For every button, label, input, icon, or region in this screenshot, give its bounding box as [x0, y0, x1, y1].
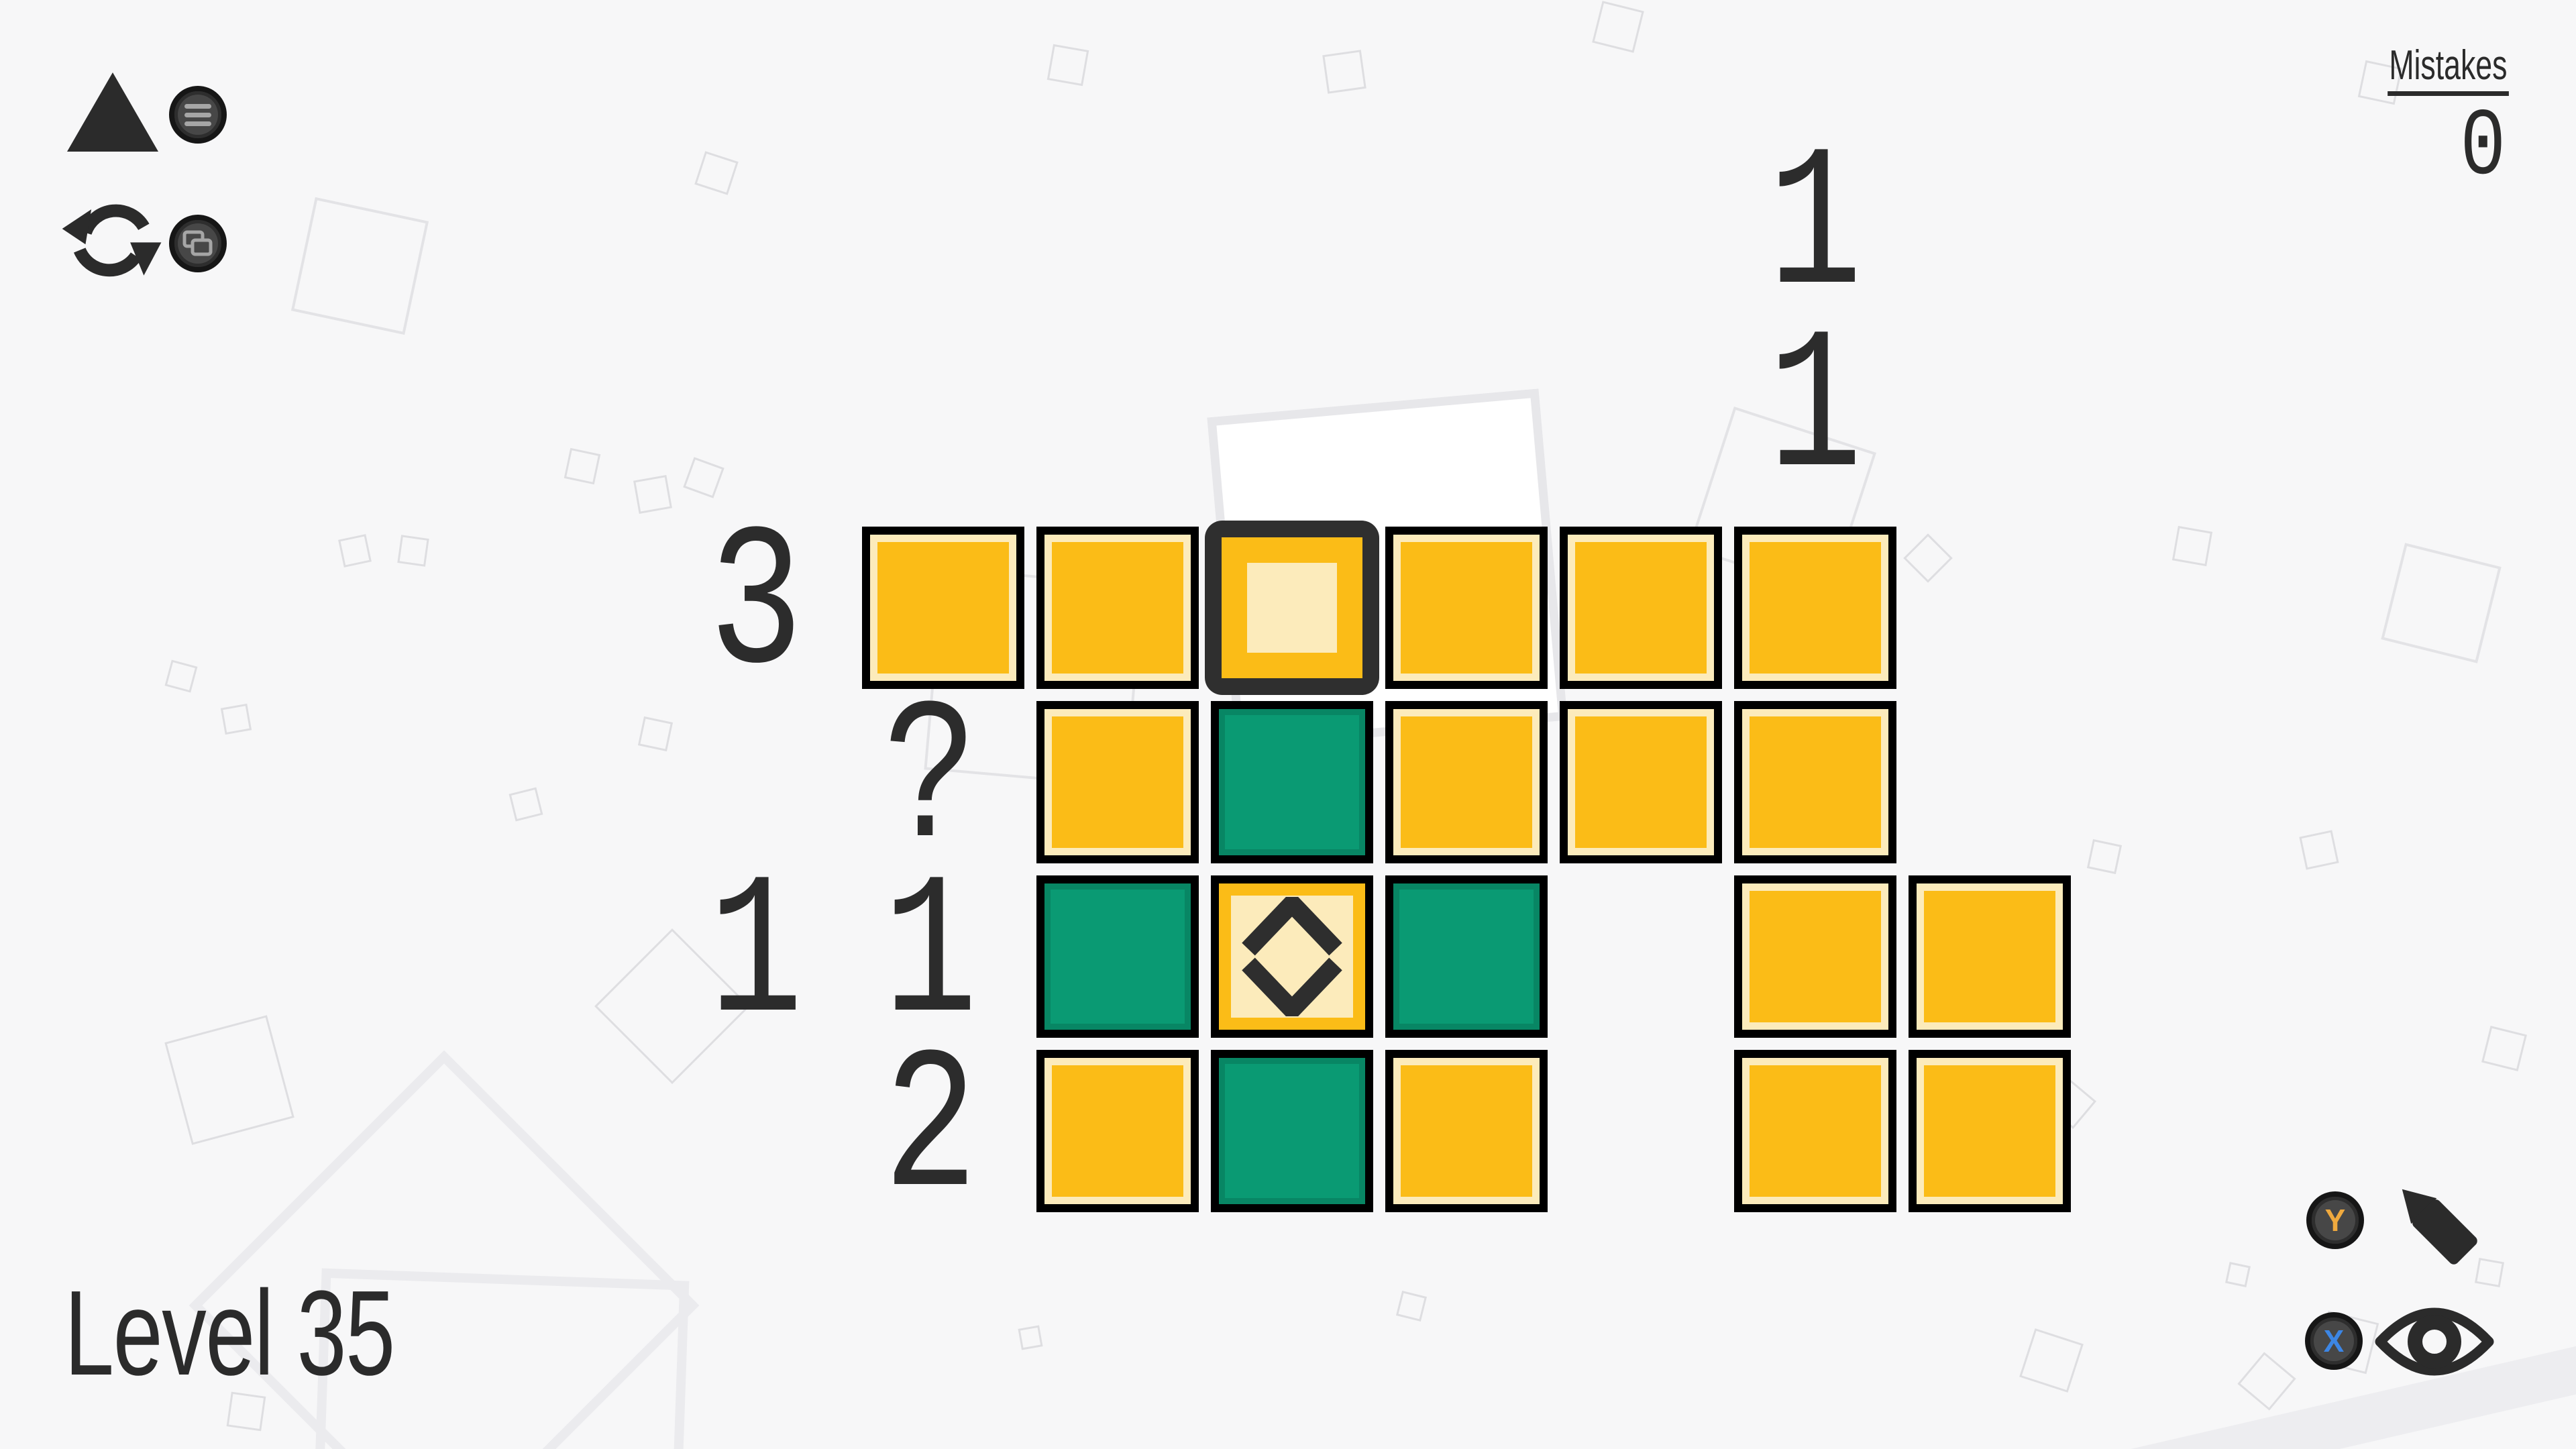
cell-r2c5-yellow[interactable]: [1734, 875, 1896, 1038]
decor-square: [291, 197, 429, 335]
decor-square: [2381, 543, 2501, 663]
mistakes-counter: Mistakes 0: [2341, 43, 2509, 197]
cell-r0c3-yellow[interactable]: [1385, 527, 1548, 689]
decor-square: [2299, 830, 2339, 869]
cell-r0c5-yellow[interactable]: [1734, 527, 1896, 689]
cell-r3c3-yellow[interactable]: [1385, 1050, 1548, 1212]
row-clue-digit: 1: [704, 856, 808, 1057]
decor-square: [1592, 1, 1644, 53]
x-button-label: X: [2324, 1326, 2345, 1356]
decor-square: [1396, 1291, 1427, 1322]
decor-square: [1047, 44, 1089, 87]
row-clue-1: ?: [863, 701, 998, 863]
cell-r1c2-green[interactable]: [1211, 701, 1373, 863]
gamepad-menu-button[interactable]: [169, 86, 227, 144]
decor-square: [221, 704, 252, 735]
cell-r1c5-yellow[interactable]: [1734, 701, 1896, 863]
decor-square: [165, 660, 198, 693]
cell-r3c1-yellow[interactable]: [1036, 1050, 1199, 1212]
cell-r2c6-yellow[interactable]: [1909, 875, 2071, 1038]
cell-r3c6-yellow[interactable]: [1909, 1050, 2071, 1212]
cell-r2c3-green[interactable]: [1385, 875, 1548, 1038]
gamepad-x-button[interactable]: X: [2305, 1312, 2363, 1370]
column-clue-digit: 1: [1752, 138, 1879, 320]
column-clue-digit: 1: [1752, 320, 1879, 502]
decor-square: [2019, 1328, 2084, 1393]
decor-square: [633, 475, 672, 514]
cell-r3c2-green[interactable]: [1211, 1050, 1373, 1212]
decor-square: [1322, 50, 1366, 94]
mistakes-value: 0: [2460, 100, 2509, 197]
cell-r2c1-green[interactable]: [1036, 875, 1199, 1038]
cell-r1c3-yellow[interactable]: [1385, 701, 1548, 863]
eye-icon[interactable]: [2373, 1297, 2495, 1386]
decor-square: [2481, 1026, 2527, 1071]
game-screen: 3?11211 Mistakes 0 Level 35 Y X: [0, 0, 2576, 1449]
decor-square: [2225, 1262, 2251, 1287]
cell-r1c4-yellow[interactable]: [1560, 701, 1722, 863]
row-clue-digit: 3: [704, 507, 808, 708]
decor-square: [564, 448, 601, 485]
decor-square: [694, 151, 739, 195]
gamepad-y-button[interactable]: Y: [2306, 1191, 2364, 1249]
row-clue-digit: 2: [878, 1030, 983, 1232]
hamburger-icon: [184, 113, 211, 117]
decor-square: [1018, 1325, 1042, 1350]
cell-r1c1-yellow[interactable]: [1036, 701, 1199, 863]
decor-square: [164, 1015, 294, 1145]
cell-r0c1-yellow[interactable]: [1036, 527, 1199, 689]
cell-r3c5-yellow[interactable]: [1734, 1050, 1896, 1212]
decor-square: [638, 716, 673, 751]
hamburger-icon: [184, 104, 211, 109]
selected-cell[interactable]: [1205, 521, 1379, 695]
gamepad-view-button[interactable]: [169, 215, 227, 272]
cursor-cell[interactable]: [1211, 875, 1373, 1038]
row-clue-2: 11: [689, 875, 998, 1038]
column-clue-5: 11: [1734, 138, 1896, 502]
cycle-chevrons-icon: [1242, 897, 1342, 1016]
restart-icon[interactable]: [62, 192, 164, 287]
decor-square: [2172, 526, 2212, 566]
decor-square: [683, 457, 724, 498]
menu-triangle-icon[interactable]: [67, 72, 158, 152]
hamburger-icon: [184, 121, 211, 126]
pencil-icon[interactable]: [2385, 1173, 2486, 1273]
y-button-label: Y: [2325, 1205, 2346, 1236]
decor-square: [509, 788, 543, 822]
cell-r0c4-yellow[interactable]: [1560, 527, 1722, 689]
selected-cell-face: [1247, 563, 1337, 653]
level-label: Level 35: [64, 1273, 394, 1394]
decor-square: [2237, 1352, 2296, 1410]
cell-r0c0-yellow[interactable]: [862, 527, 1024, 689]
decor-square: [397, 535, 429, 566]
decor-square: [2087, 839, 2122, 874]
row-clue-3: 2: [863, 1050, 998, 1212]
decor-square: [338, 534, 372, 568]
selected-cell-ring: [1222, 537, 1362, 678]
row-clue-0: 3: [689, 527, 823, 689]
mistakes-label: Mistakes: [2388, 43, 2509, 96]
view-windows-icon: [182, 229, 214, 258]
decor-square: [1903, 533, 1953, 583]
